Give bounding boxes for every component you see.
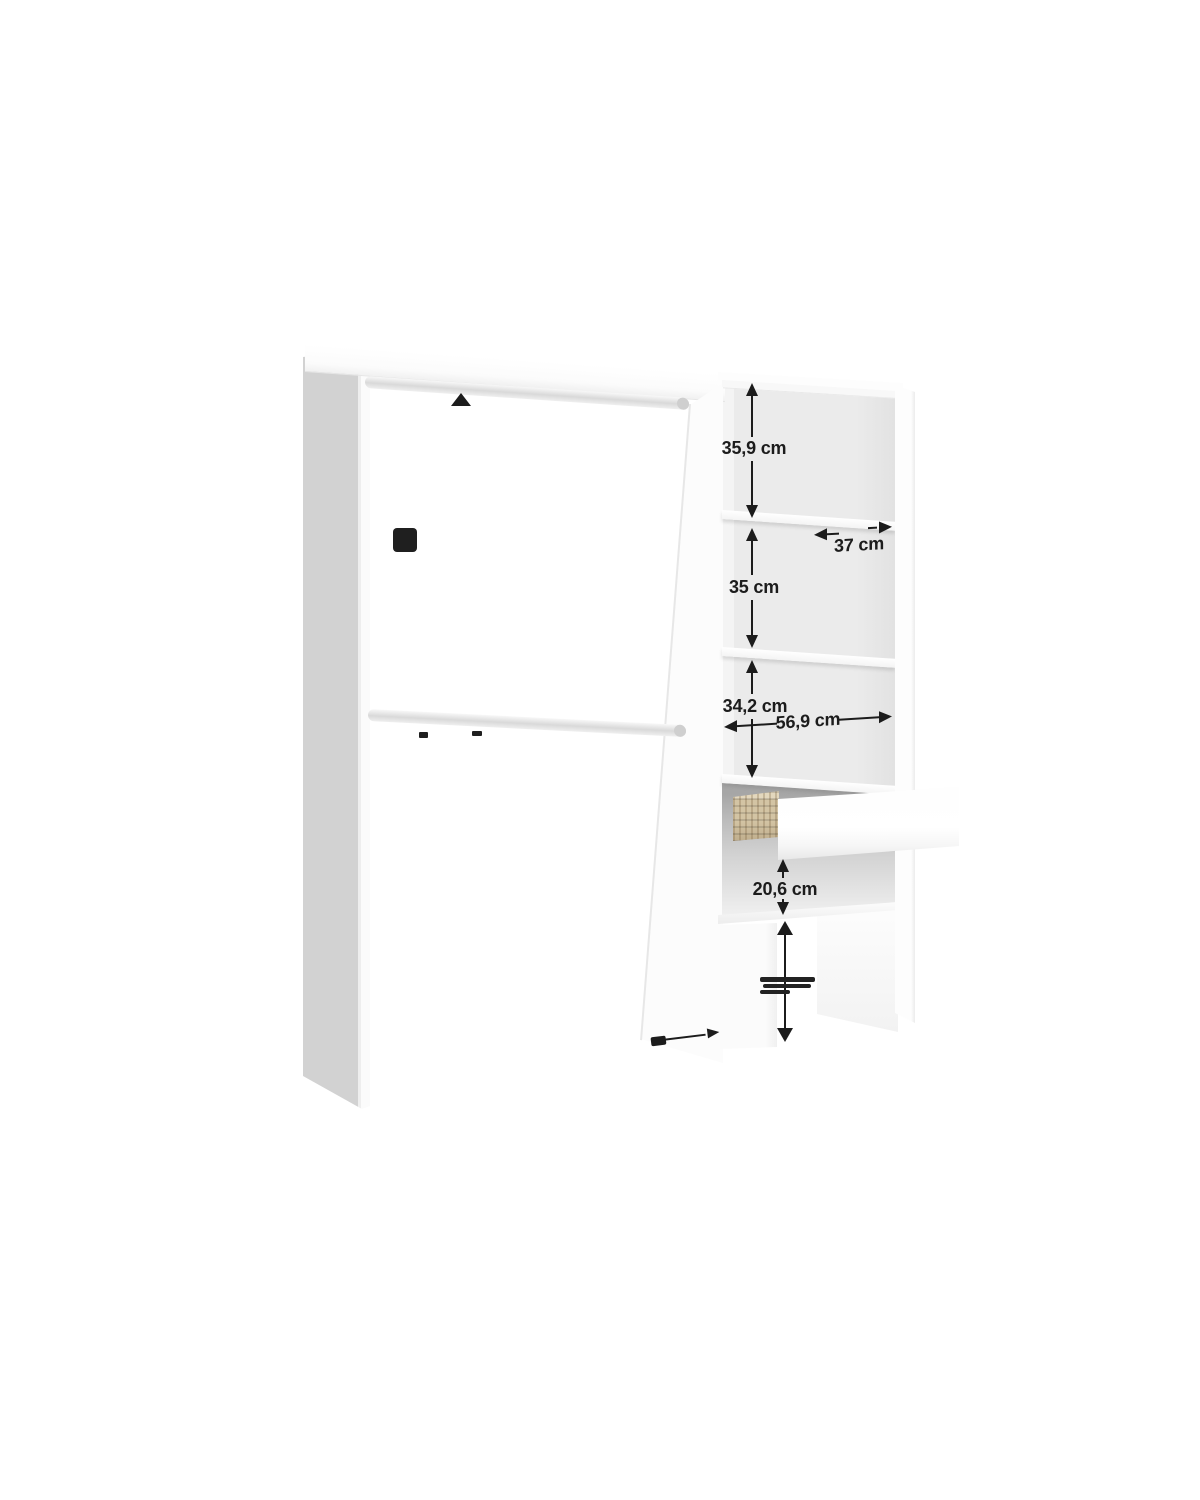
label-fragment — [760, 990, 790, 994]
wardrobe-dimension-diagram: 35,9 cm 37 cm 35 cm 34,2 cm 56,9 cm — [0, 0, 1200, 1500]
dim-arrowhead-down — [746, 635, 758, 648]
dim-line — [737, 723, 777, 728]
dim-arrowhead-right — [707, 1027, 720, 1038]
dim-arrowhead-left — [724, 720, 737, 733]
dim-arrowhead-left — [814, 528, 827, 541]
dim-line — [839, 716, 879, 721]
dim-arrowhead-up — [777, 921, 793, 935]
rail-end-cap — [677, 397, 689, 410]
label-fragment — [760, 977, 815, 982]
dim-arrowhead-down — [777, 902, 789, 915]
dim-arrowhead-down — [746, 505, 758, 518]
dim-line — [751, 395, 753, 437]
dim-arrowhead-right — [879, 710, 892, 723]
dim-line — [751, 672, 753, 694]
dim-arrowhead-down — [777, 1028, 793, 1042]
right-leg — [817, 903, 898, 1034]
remnant-arrowhead — [451, 393, 471, 406]
dim-label-top-compartment: 35,9 cm — [722, 439, 787, 459]
dimension-shelf-depth: 37 cm — [812, 520, 892, 558]
dim-line — [660, 1034, 706, 1042]
dim-label-middle-compartment: 35 cm — [729, 578, 779, 598]
dim-line — [751, 600, 753, 636]
dim-arrowhead-right — [879, 521, 892, 534]
dim-label-lower-compartment: 34,2 cm — [723, 697, 788, 717]
remnant-dash — [419, 732, 428, 738]
wicker-basket — [733, 791, 779, 841]
dim-line — [868, 527, 877, 529]
remnant-blob — [393, 528, 417, 552]
left-side-panel — [303, 349, 370, 1109]
hanging-rail-middle — [368, 709, 686, 737]
dim-remnant-mark — [650, 1036, 666, 1047]
dim-line — [782, 871, 784, 878]
right-side-panel-edge — [895, 385, 915, 1030]
dim-label-drawer-compartment: 20,6 cm — [753, 880, 818, 900]
remnant-dash — [472, 731, 482, 736]
label-fragment — [763, 984, 811, 988]
dim-line — [751, 540, 753, 575]
drawer-front — [778, 787, 959, 860]
rail-end-cap — [674, 725, 686, 738]
dim-label-shelf-depth: 37 cm — [834, 534, 884, 556]
dim-arrowhead-down — [746, 765, 758, 778]
dim-line — [751, 461, 753, 506]
center-partition — [640, 371, 723, 1063]
